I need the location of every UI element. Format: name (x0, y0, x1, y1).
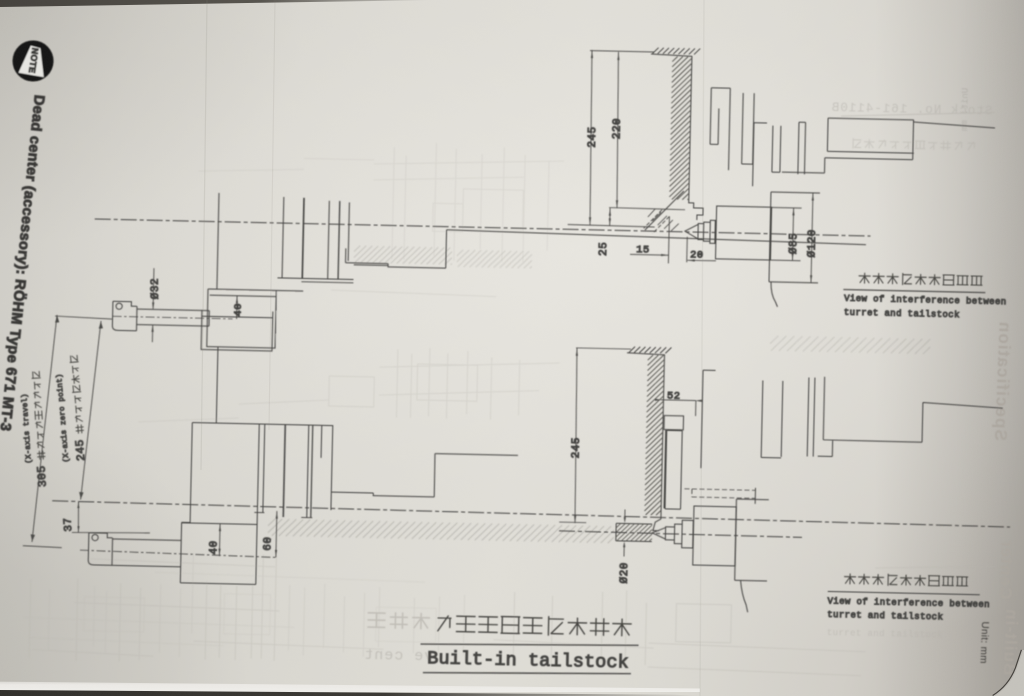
svg-text:Ø120: Ø120 (807, 229, 820, 258)
svg-text:Center: Center (996, 539, 1017, 600)
svg-text:25: 25 (598, 242, 610, 256)
svg-text:305: 305 (35, 465, 49, 487)
svg-text:245: 245 (74, 439, 89, 462)
svg-text:40: 40 (208, 540, 220, 554)
svg-text:ve cent: ve cent (363, 647, 433, 666)
svg-text:Ø85: Ø85 (788, 233, 800, 255)
svg-text:40: 40 (233, 303, 245, 317)
svg-text:Built-in tailstock: Built-in tailstock (427, 648, 629, 673)
svg-text:Ø32: Ø32 (150, 278, 162, 299)
svg-text:Specification: Specification (991, 320, 1015, 441)
svg-text:Unit: mm: Unit: mm (977, 621, 990, 664)
svg-text:60: 60 (263, 536, 275, 550)
svg-text:Dead center (accessory): RÖHM: Dead center (accessory): RÖHM Type 671 M… (0, 94, 48, 432)
svg-text:15: 15 (636, 244, 650, 256)
svg-text:Unit: mm: Unit: mm (960, 88, 971, 131)
svg-text:220: 220 (612, 118, 624, 140)
svg-text:(X-axis travel): (X-axis travel) (21, 393, 34, 464)
svg-text:Ø20: Ø20 (619, 562, 631, 584)
svg-text:245: 245 (571, 437, 583, 459)
svg-text:View of interference between: View of interference between (844, 294, 1007, 308)
svg-text:37: 37 (62, 517, 75, 532)
svg-text:(X-axis zero point): (X-axis zero point) (56, 373, 71, 463)
svg-text:turret and tailstock: turret and tailstock (844, 308, 960, 321)
svg-text:20: 20 (690, 249, 704, 261)
svg-text:turret and tailstock: turret and tailstock (827, 628, 943, 641)
svg-text:245: 245 (587, 126, 599, 148)
svg-text:turret and tailstock: turret and tailstock (827, 610, 943, 623)
svg-text:View of interference between: View of interference between (827, 596, 990, 610)
svg-text:52: 52 (667, 390, 681, 402)
